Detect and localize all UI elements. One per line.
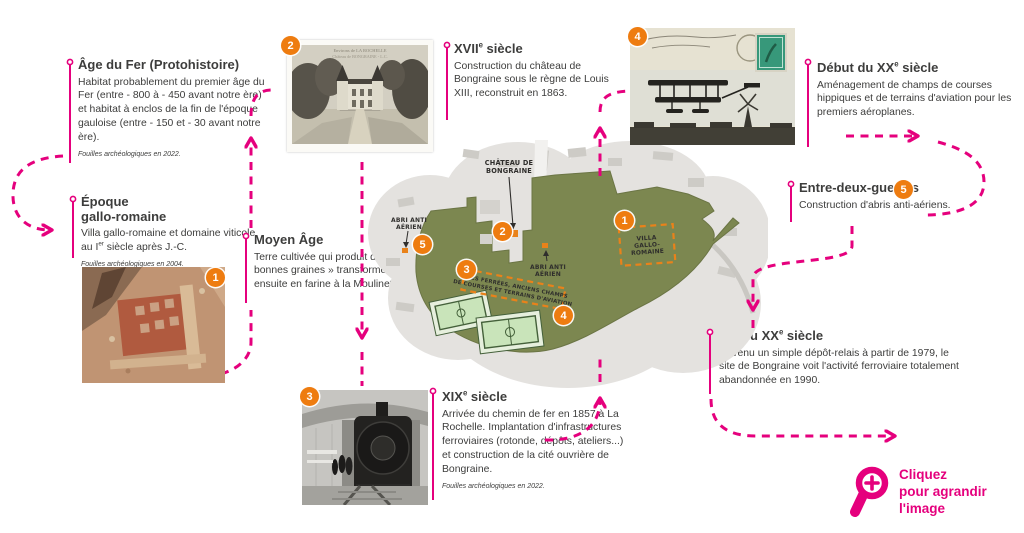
photo-locomotive — [302, 390, 428, 505]
stem-ring — [805, 59, 810, 64]
stem-ring — [788, 181, 793, 186]
photo-archaeological-dig — [82, 267, 225, 383]
magnifier-plus-icon — [850, 466, 898, 524]
cta-line1: Cliquez — [899, 467, 1020, 484]
arrow-xix-to-map — [545, 400, 600, 440]
arrow-entre-deux-to-fin — [753, 226, 852, 308]
locomotive-illustration — [302, 390, 428, 505]
arrow-photo1-to-moyen-age — [221, 310, 251, 374]
photo3-marker: 3 — [300, 387, 319, 406]
biplane-illustration — [630, 28, 795, 145]
entre-deux-guerres-marker: 5 — [894, 180, 913, 199]
photo-biplane-postcard — [630, 28, 795, 145]
infographic-bongraine-timeline: VILLA GALLO- ROMAINE VOIES FERRÉES, ANCI… — [0, 0, 1024, 533]
arrow-fin-to-cta — [711, 399, 893, 436]
arrow-to-photo2 — [251, 90, 272, 116]
stem-ring — [243, 233, 248, 238]
photo4-marker: 4 — [628, 27, 647, 46]
map-marker-3: 3 — [457, 260, 476, 279]
photo2-marker: 2 — [281, 36, 300, 55]
cta-line2: pour agrandir l'image — [899, 484, 1020, 518]
map-marker-1: 1 — [615, 211, 634, 230]
stem-ring — [444, 42, 449, 47]
arrow-edge-to-epoque — [13, 156, 63, 230]
postcard-header-line1: Environs de LA ROCHELLE — [333, 48, 386, 53]
arrow-debut-to-entre-deux — [924, 142, 984, 215]
chateau-illustration: Environs de LA ROCHELLE Château de BONGR… — [292, 45, 428, 144]
enlarge-cta[interactable]: Cliquez pour agrandir l'image — [850, 462, 1020, 526]
map-marker-2: 2 — [493, 222, 512, 241]
map-marker-5: 5 — [413, 235, 432, 254]
stem-ring — [70, 196, 75, 201]
stem-ring — [707, 329, 712, 334]
postcard-header-line2: Château de BONGRAINE - L.C. — [332, 54, 387, 59]
dig-illustration — [82, 267, 225, 383]
stem-ring — [430, 388, 435, 393]
photo1-marker: 1 — [206, 268, 225, 287]
map-marker-4: 4 — [554, 306, 573, 325]
stem-ring — [67, 59, 72, 64]
photo-chateau-postcard: Environs de LA ROCHELLE Château de BONGR… — [287, 40, 433, 152]
